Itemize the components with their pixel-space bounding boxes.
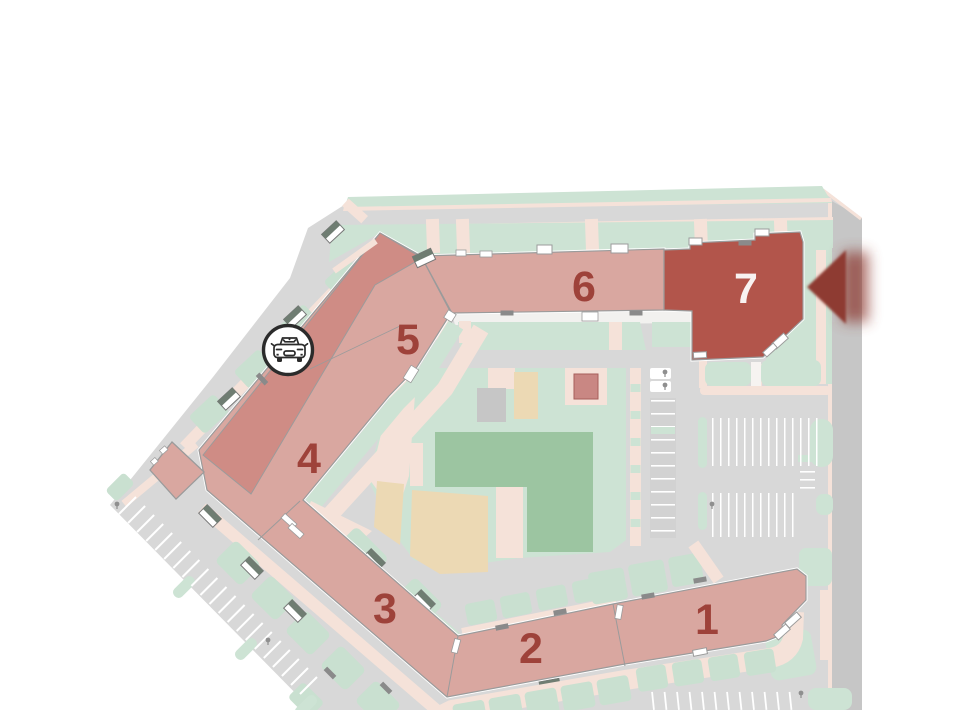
svg-text:3: 3 xyxy=(373,585,397,633)
svg-text:5: 5 xyxy=(396,316,420,364)
svg-text:4: 4 xyxy=(297,435,321,483)
svg-text:1: 1 xyxy=(695,596,719,644)
svg-text:7: 7 xyxy=(734,265,758,313)
svg-text:2: 2 xyxy=(519,625,543,673)
svg-text:6: 6 xyxy=(572,263,596,311)
